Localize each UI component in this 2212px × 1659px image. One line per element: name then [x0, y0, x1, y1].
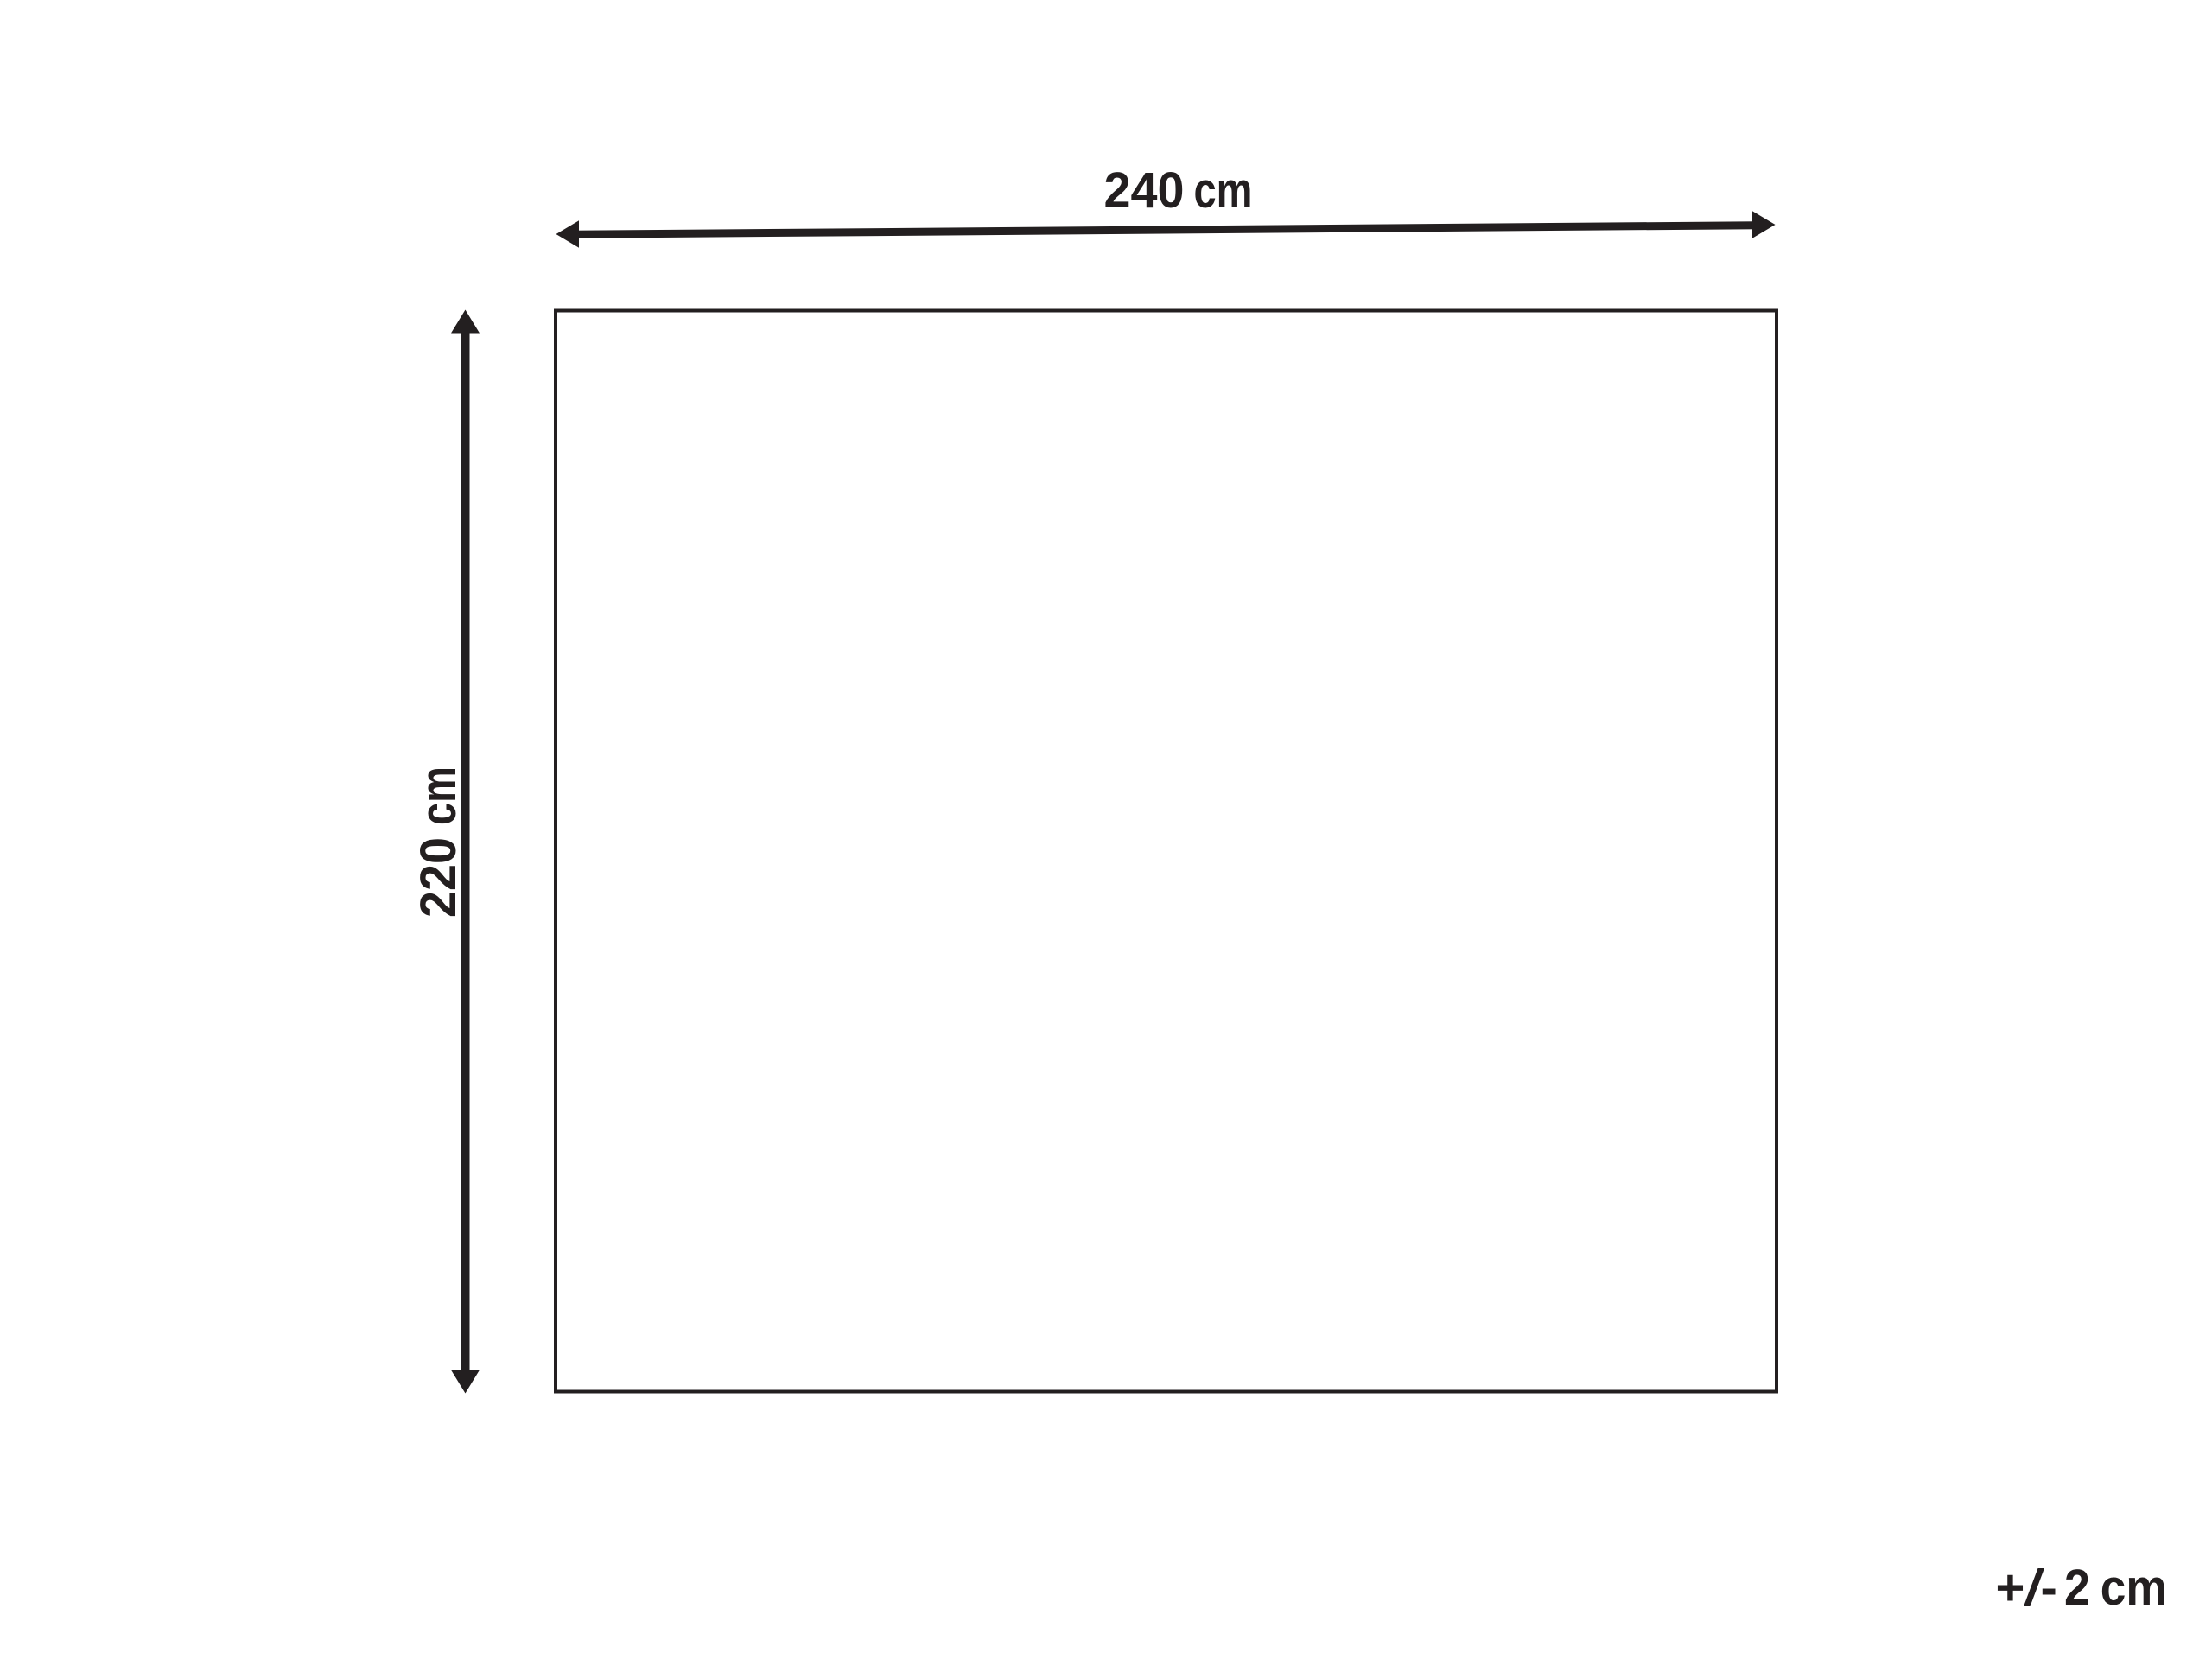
svg-text:-: - — [2041, 1560, 2057, 1616]
svg-text:cm: cm — [410, 766, 467, 825]
svg-text:cm: cm — [2101, 1560, 2167, 1616]
svg-text:2: 2 — [2064, 1560, 2090, 1616]
svg-text:cm: cm — [1194, 162, 1253, 219]
svg-text:+: + — [1996, 1560, 2025, 1616]
svg-text:240: 240 — [1104, 162, 1185, 219]
svg-text:220: 220 — [410, 837, 467, 918]
